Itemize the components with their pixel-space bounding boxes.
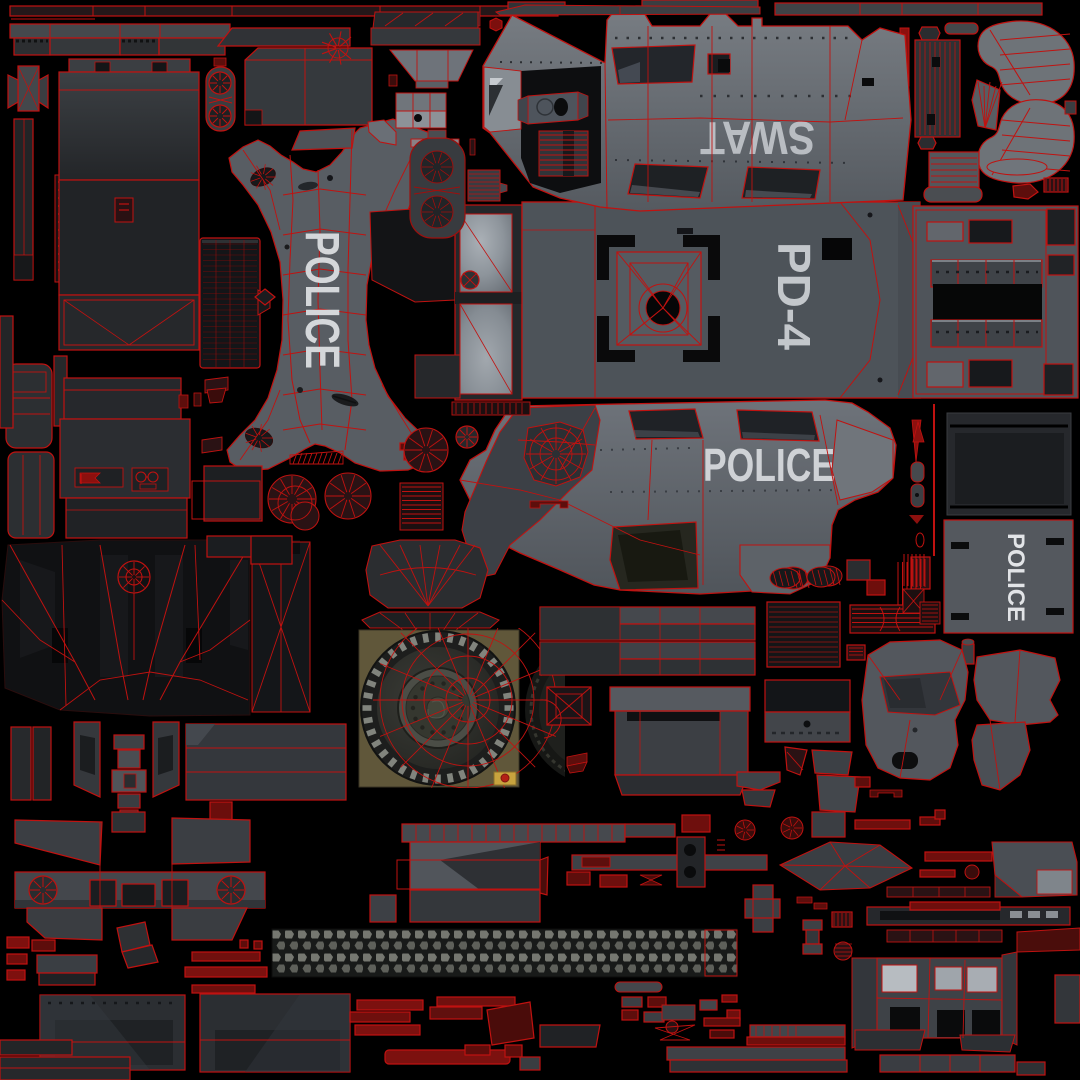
svg-text:POLICE: POLICE xyxy=(1002,533,1029,622)
svg-text:POLICE: POLICE xyxy=(703,439,835,491)
svg-text:POLICE: POLICE xyxy=(295,231,348,369)
svg-text:PD-4: PD-4 xyxy=(768,242,820,350)
